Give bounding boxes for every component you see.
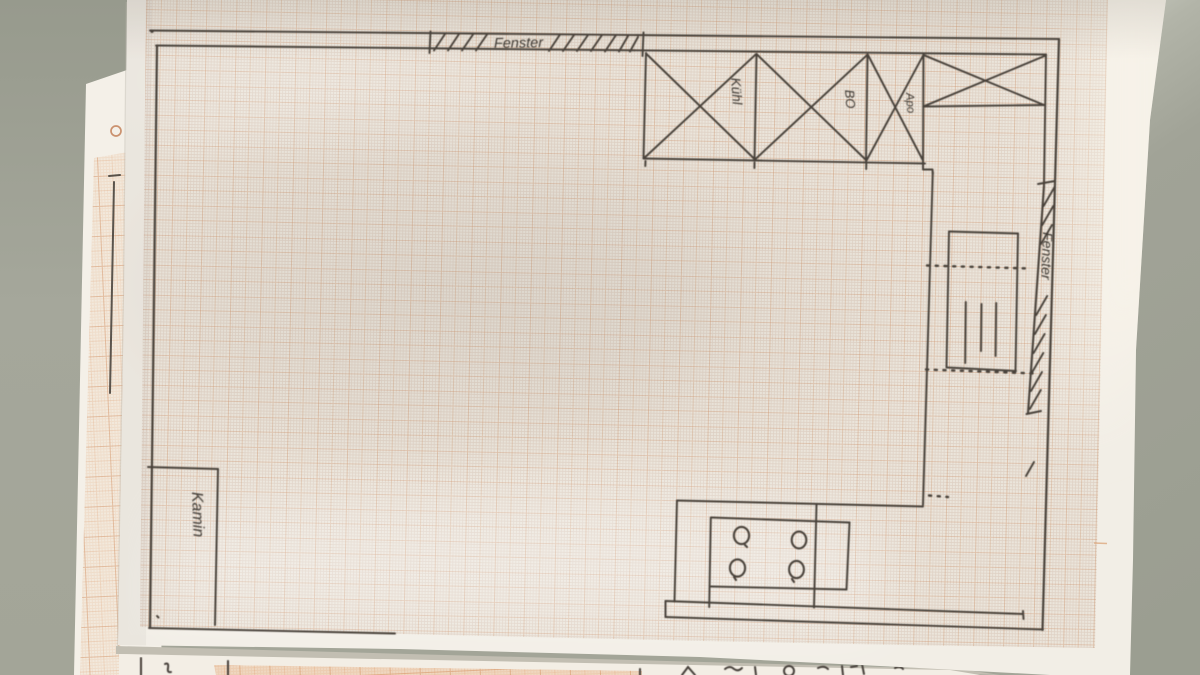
- svg-text:Kühl: Kühl: [728, 77, 745, 106]
- svg-text:Fenster: Fenster: [494, 35, 545, 52]
- svg-text:Fenster: Fenster: [1038, 232, 1056, 281]
- svg-text:BO: BO: [842, 89, 858, 109]
- svg-text:Kamin: Kamin: [188, 492, 207, 538]
- svg-text:Apo: Apo: [903, 91, 917, 114]
